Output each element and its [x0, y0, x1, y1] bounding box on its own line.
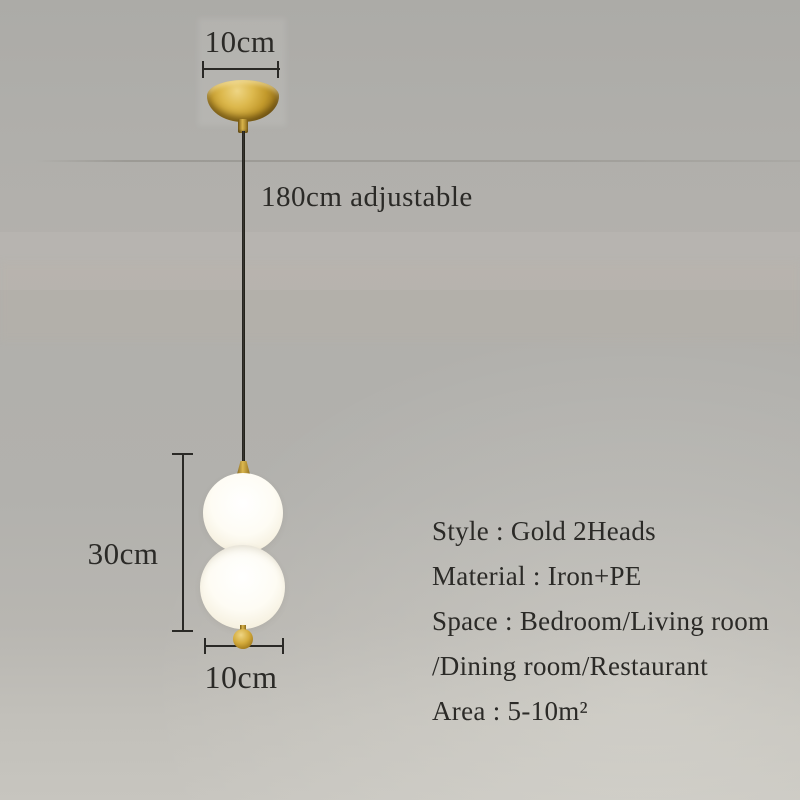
- canopy-width-label: 10cm: [196, 24, 284, 60]
- ceiling-wall-junction-line: [35, 160, 800, 162]
- lamp-width-tick-left: [204, 638, 206, 654]
- lamp-finial-ball: [233, 629, 253, 649]
- wall-warm-tint-band: [0, 262, 800, 340]
- lamp-glass-ball-top: [203, 473, 283, 553]
- canopy-width-tick-right: [277, 61, 279, 78]
- cord-length-label: 180cm adjustable: [261, 181, 473, 214]
- canopy-width-tick-left: [202, 61, 204, 78]
- spec-space-line2: /Dining room/Restaurant: [432, 644, 769, 689]
- lamp-height-tick-top: [172, 453, 193, 455]
- spec-style: Style : Gold 2Heads: [432, 509, 769, 554]
- lamp-height-dimension-line: [182, 454, 184, 632]
- lamp-height-tick-bottom: [172, 630, 193, 632]
- canopy-width-dimension-line: [203, 68, 280, 70]
- lamp-cord: [242, 131, 245, 463]
- lamp-width-tick-right: [282, 638, 284, 654]
- product-photo-scene: 10cm 180cm adjustable 30cm 10cm Style : …: [0, 0, 800, 800]
- spec-space-line1: Space : Bedroom/Living room: [432, 599, 769, 644]
- spec-material: Material : Iron+PE: [432, 554, 769, 599]
- spec-area: Area : 5-10m²: [432, 689, 769, 734]
- lamp-height-label: 30cm: [82, 536, 164, 572]
- lamp-glass-ball-bottom: [200, 545, 285, 629]
- lamp-width-label: 10cm: [199, 659, 283, 696]
- product-specs-block: Style : Gold 2Heads Material : Iron+PE S…: [432, 509, 769, 734]
